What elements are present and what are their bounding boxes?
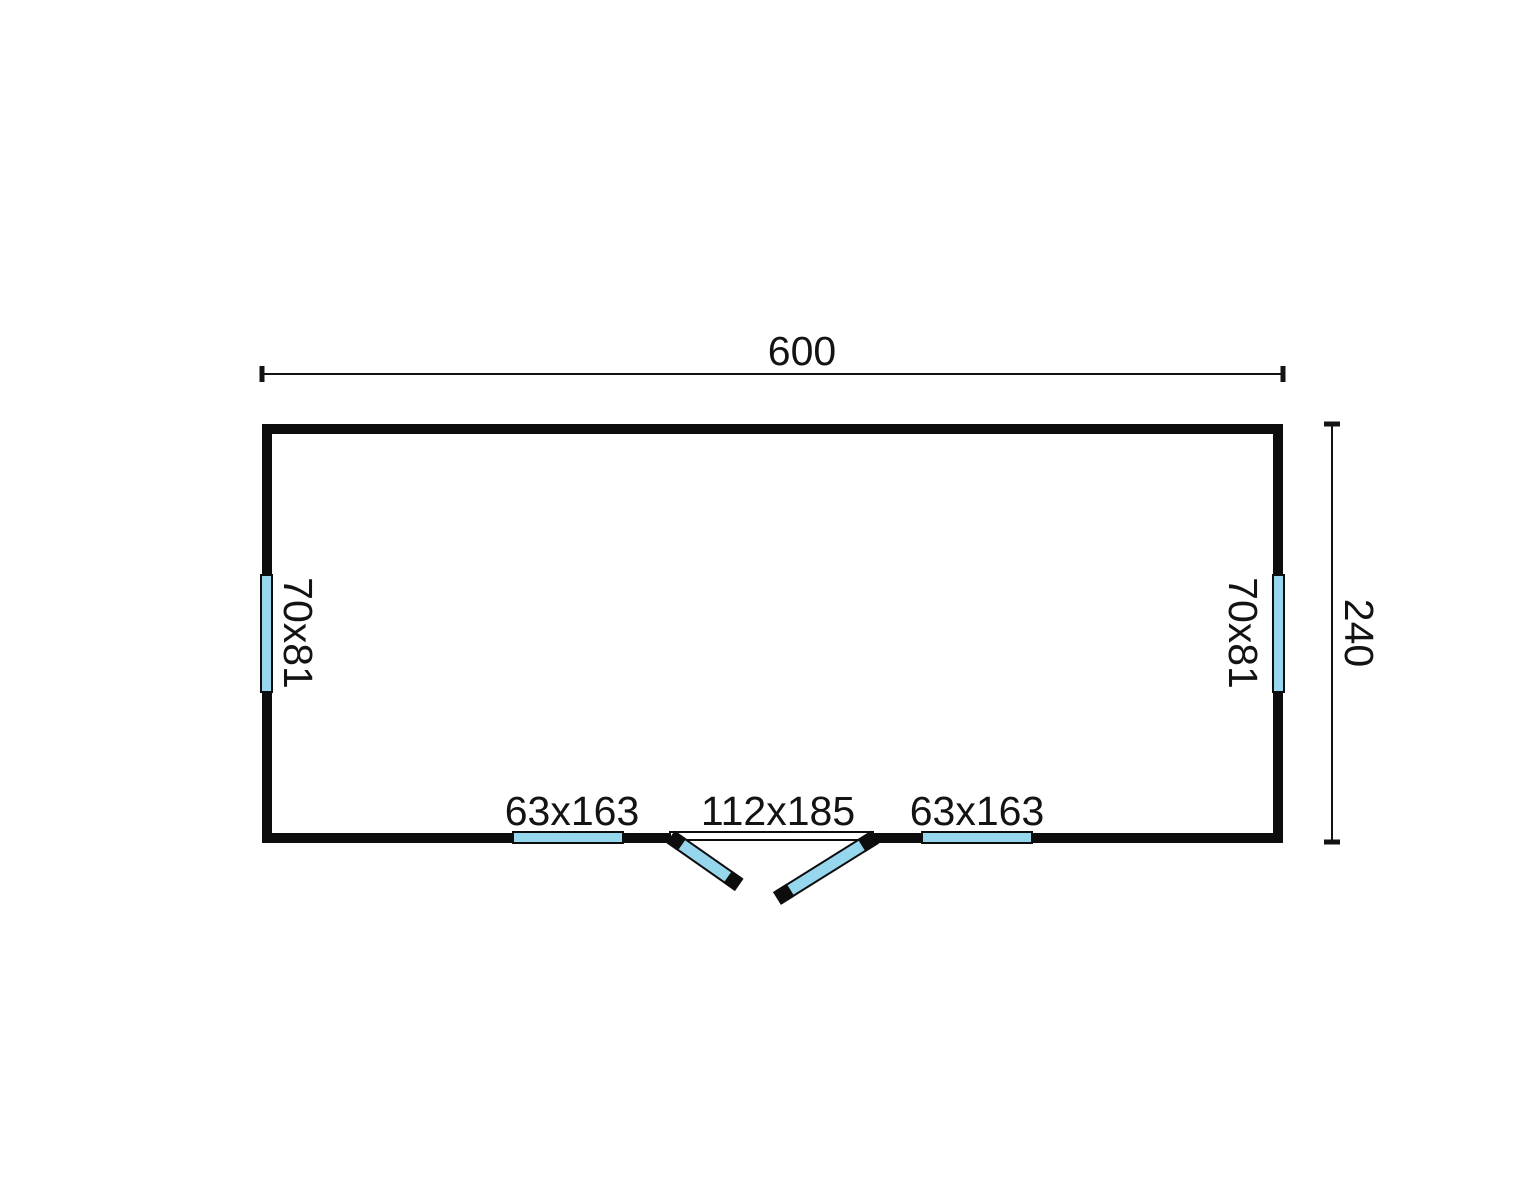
width-dimension-label: 600 xyxy=(768,328,836,374)
walls xyxy=(262,424,1283,843)
width-dimension: 600 xyxy=(262,328,1283,382)
window-right: 70x81 xyxy=(1220,575,1284,692)
window-bottom-right-label: 63x163 xyxy=(910,788,1045,834)
window-bottom-right: 63x163 xyxy=(910,788,1045,843)
depth-dimension: 240 xyxy=(1324,424,1382,842)
double-door: 112x185 xyxy=(667,788,878,904)
window-left: 70x81 xyxy=(261,575,321,692)
window-bottom-left-label: 63x163 xyxy=(505,788,640,834)
window-right-glazing xyxy=(1273,575,1284,692)
window-right-label: 70x81 xyxy=(1220,577,1266,689)
depth-dimension-label: 240 xyxy=(1336,599,1382,667)
window-left-label: 70x81 xyxy=(275,577,321,689)
door-leaf-right xyxy=(774,831,879,904)
floor-plan: 600 240 70x81 70x81 63x1 xyxy=(0,0,1530,1188)
window-left-glazing xyxy=(261,575,272,692)
floor-plan-canvas: 600 240 70x81 70x81 63x1 xyxy=(0,0,1530,1188)
window-bottom-left: 63x163 xyxy=(505,788,640,843)
wall-top xyxy=(262,424,1283,434)
door-label: 112x185 xyxy=(701,788,855,834)
